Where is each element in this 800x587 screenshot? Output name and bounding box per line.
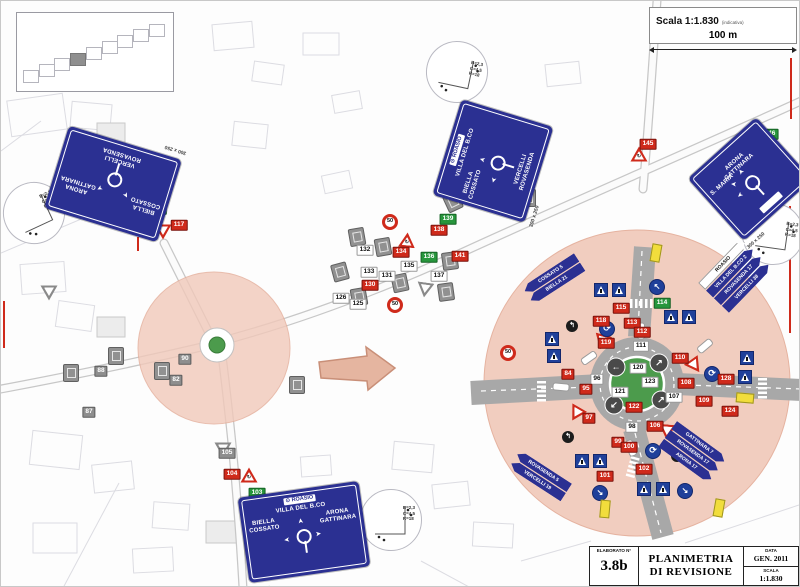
number-tag-131: 131 bbox=[379, 271, 396, 282]
sign-icon-gyield bbox=[416, 281, 435, 298]
sign-icon-ped bbox=[547, 349, 561, 363]
sign-icon-ped bbox=[637, 482, 651, 496]
number-tag-107: 107 bbox=[666, 392, 683, 403]
number-tag-125: 125 bbox=[350, 299, 367, 310]
panel-arrow-up: ➤ bbox=[737, 167, 746, 176]
number-tag-126: 126 bbox=[333, 293, 350, 304]
panel-size-note: 300 x 250 bbox=[164, 144, 187, 156]
sign-icon-blk: ↰ bbox=[566, 320, 578, 332]
number-tag-136: 136 bbox=[421, 252, 438, 263]
number-tag-97: 97 bbox=[582, 413, 595, 424]
title-block-meta: DATA GEN. 2011 SCALA 1:1.830 bbox=[744, 547, 798, 585]
sign-icon-warnrb: ↻ bbox=[241, 468, 258, 483]
number-tag-108: 108 bbox=[678, 378, 695, 389]
scale-arrowhead-right bbox=[792, 47, 797, 53]
inset-sheet bbox=[117, 35, 133, 48]
number-tag-101: 101 bbox=[597, 471, 614, 482]
number-tag-112: 112 bbox=[634, 327, 651, 338]
panel-arrow-left: ➤ bbox=[735, 190, 744, 199]
sign-icon-bus bbox=[599, 500, 611, 519]
planimetry-drawing: 1161171431451468887908210510410313213313… bbox=[0, 0, 800, 587]
panel-arrow-up: ➤ bbox=[479, 155, 487, 163]
sign-icon-cap bbox=[696, 337, 714, 354]
scale-arrow bbox=[649, 46, 797, 53]
elaborato-value: 3.8b bbox=[590, 557, 638, 575]
number-tag-137: 137 bbox=[431, 271, 448, 282]
sign-icon-ped bbox=[594, 283, 608, 297]
number-tag-115: 115 bbox=[613, 303, 630, 314]
number-tag-117: 117 bbox=[171, 220, 188, 231]
sign-icon-c50: 50 bbox=[382, 214, 398, 230]
number-tag-119: 119 bbox=[598, 338, 615, 349]
sign-icon-keep: ↘ bbox=[677, 483, 693, 499]
scale-box: Scala 1:1.830(indicativa) 100 m bbox=[649, 7, 797, 53]
sign-icon-ped bbox=[545, 332, 559, 346]
sign-icon-gs bbox=[108, 347, 124, 365]
number-tag-87: 87 bbox=[82, 407, 95, 418]
sign-icon-ped bbox=[682, 310, 696, 324]
inset-sheet bbox=[39, 64, 55, 77]
sign-icon-warnrb: ↻ bbox=[398, 232, 416, 248]
inset-current-sheet bbox=[70, 53, 86, 66]
elaborato-label: ELABORATO N° bbox=[590, 547, 638, 554]
mounting-detail-circle: B=2,3C=4,5R=18 bbox=[360, 489, 422, 551]
number-tag-139: 139 bbox=[440, 214, 457, 225]
number-tag-122: 122 bbox=[626, 402, 643, 413]
scale-box-frame: Scala 1:1.830(indicativa) 100 m bbox=[649, 7, 797, 44]
sign-icon-ped bbox=[656, 482, 670, 496]
number-tag-109: 109 bbox=[696, 396, 713, 407]
sign-icon-ped bbox=[664, 310, 678, 324]
panel-arrow-up: ➤ bbox=[298, 518, 306, 525]
sign-icon-ped bbox=[593, 454, 607, 468]
sign-icon-ped bbox=[612, 283, 626, 297]
date-label: DATA bbox=[744, 547, 798, 554]
sign-icon-cap bbox=[552, 382, 570, 391]
sign-icon-isl: ↗ bbox=[650, 354, 669, 373]
inset-sheet bbox=[23, 70, 39, 83]
sign-icon-keep: ↖ bbox=[649, 279, 665, 295]
number-tag-96: 96 bbox=[590, 374, 603, 385]
number-tag-135: 135 bbox=[401, 261, 418, 272]
date-value: GEN. 2011 bbox=[744, 554, 798, 563]
scale-distance: 100 m bbox=[656, 30, 790, 41]
sign-icon-cap bbox=[580, 350, 599, 366]
inset-sheet bbox=[86, 47, 102, 60]
sign-icon-isl: ← bbox=[607, 358, 626, 377]
title-block-elaborato: ELABORATO N° 3.8b bbox=[590, 547, 639, 585]
number-tag-82: 82 bbox=[169, 375, 182, 386]
sign-icon-bus bbox=[736, 392, 755, 404]
number-tag-104: 104 bbox=[224, 469, 241, 480]
panel-sign-south: ⊙ ROASIOVILLA DEL B.COBIELLACOSSATOARONA… bbox=[238, 481, 371, 583]
inset-sheet bbox=[54, 58, 70, 71]
key-map-inset bbox=[16, 12, 174, 92]
mounting-detail-circle: B=2,3C=4,5R=18 bbox=[420, 35, 494, 109]
sign-icon-c50: 50 bbox=[500, 345, 516, 361]
number-tag-145: 145 bbox=[640, 139, 657, 150]
sign-icon-gs bbox=[437, 282, 455, 302]
drawing-title-line1: PLANIMETRIA bbox=[639, 553, 743, 566]
mounting-detail-note: B=2,3C=4,5R=18 bbox=[785, 221, 799, 239]
number-tag-121: 121 bbox=[612, 387, 629, 398]
sign-icon-isl: ↙ bbox=[605, 396, 624, 415]
direction-flag-stack: ROVASENDA 5VERCELLI 19 bbox=[508, 450, 572, 502]
scale-label: Scala 1:1.830 bbox=[656, 16, 719, 27]
panel-arrow-left: ➤ bbox=[489, 176, 497, 184]
number-tag-138: 138 bbox=[431, 225, 448, 236]
drawing-title: PLANIMETRIA DI REVISIONE bbox=[639, 547, 744, 585]
panel-arrow-upleft: ➤ bbox=[731, 180, 737, 187]
number-tag-124: 124 bbox=[722, 406, 739, 417]
number-tag-110: 110 bbox=[672, 353, 689, 364]
number-tag-118: 118 bbox=[593, 316, 610, 327]
scale-cell-value: 1:1.830 bbox=[744, 574, 798, 583]
number-tag-105: 105 bbox=[219, 448, 236, 459]
drawing-title-line2: DI REVISIONE bbox=[639, 566, 743, 579]
number-tag-123: 123 bbox=[642, 377, 659, 388]
panel-arrow-right: ➤ bbox=[315, 531, 322, 539]
number-tag-88: 88 bbox=[94, 366, 107, 377]
inset-sheet bbox=[102, 41, 118, 54]
scale-arrowhead-left bbox=[649, 47, 654, 53]
mounting-detail-note: B=2,3C=4,5R=18 bbox=[403, 505, 415, 522]
inset-sheet bbox=[149, 24, 165, 37]
title-block-date: DATA GEN. 2011 bbox=[744, 547, 798, 566]
sign-icon-c50: 50 bbox=[387, 297, 403, 313]
number-tag-132: 132 bbox=[357, 245, 374, 256]
panel-arrow-upright: ➤ bbox=[95, 183, 103, 192]
sign-icon-bus bbox=[650, 243, 663, 262]
sign-icon-gyield bbox=[41, 286, 58, 301]
number-tag-114: 114 bbox=[654, 298, 671, 309]
number-tag-141: 141 bbox=[452, 251, 469, 262]
inset-sheet bbox=[133, 29, 149, 42]
number-tag-102: 102 bbox=[636, 464, 653, 475]
sign-icon-ped bbox=[738, 370, 752, 384]
number-tag-98: 98 bbox=[625, 422, 638, 433]
sign-icon-ped bbox=[740, 351, 754, 365]
panel-arrow-upleft: ➤ bbox=[121, 191, 130, 199]
number-tag-111: 111 bbox=[633, 341, 649, 352]
title-block-scale: SCALA 1:1.830 bbox=[744, 566, 798, 586]
number-tag-95: 95 bbox=[579, 384, 592, 395]
scale-cell-label: SCALA bbox=[744, 567, 798, 574]
sign-icon-gs bbox=[289, 376, 305, 394]
number-tag-100: 100 bbox=[621, 442, 638, 453]
sign-icon-gs bbox=[374, 237, 393, 258]
sign-icon-gs bbox=[154, 362, 170, 380]
sign-icon-gs bbox=[63, 364, 79, 382]
panel-arrow-left: ➤ bbox=[283, 536, 290, 544]
sign-icon-blk: ↰ bbox=[562, 431, 574, 443]
number-tag-120: 120 bbox=[630, 363, 647, 374]
title-block: ELABORATO N° 3.8b PLANIMETRIA DI REVISIO… bbox=[589, 546, 799, 586]
scale-suffix: (indicativa) bbox=[722, 20, 744, 25]
number-tag-106: 106 bbox=[647, 421, 664, 432]
sign-icon-bus bbox=[713, 498, 726, 517]
panel-size-note: 300 x 250 bbox=[528, 205, 540, 228]
number-tag-134: 134 bbox=[393, 247, 410, 258]
sign-icon-gs bbox=[330, 261, 350, 283]
number-tag-133: 133 bbox=[361, 267, 378, 278]
sign-icon-ped bbox=[575, 454, 589, 468]
number-tag-130: 130 bbox=[362, 280, 379, 291]
direction-flag-stack: COSSATO 5BIELLA 21 bbox=[522, 253, 586, 305]
number-tag-84: 84 bbox=[561, 369, 574, 380]
number-tag-90: 90 bbox=[178, 354, 191, 365]
number-tag-128: 128 bbox=[718, 374, 735, 385]
